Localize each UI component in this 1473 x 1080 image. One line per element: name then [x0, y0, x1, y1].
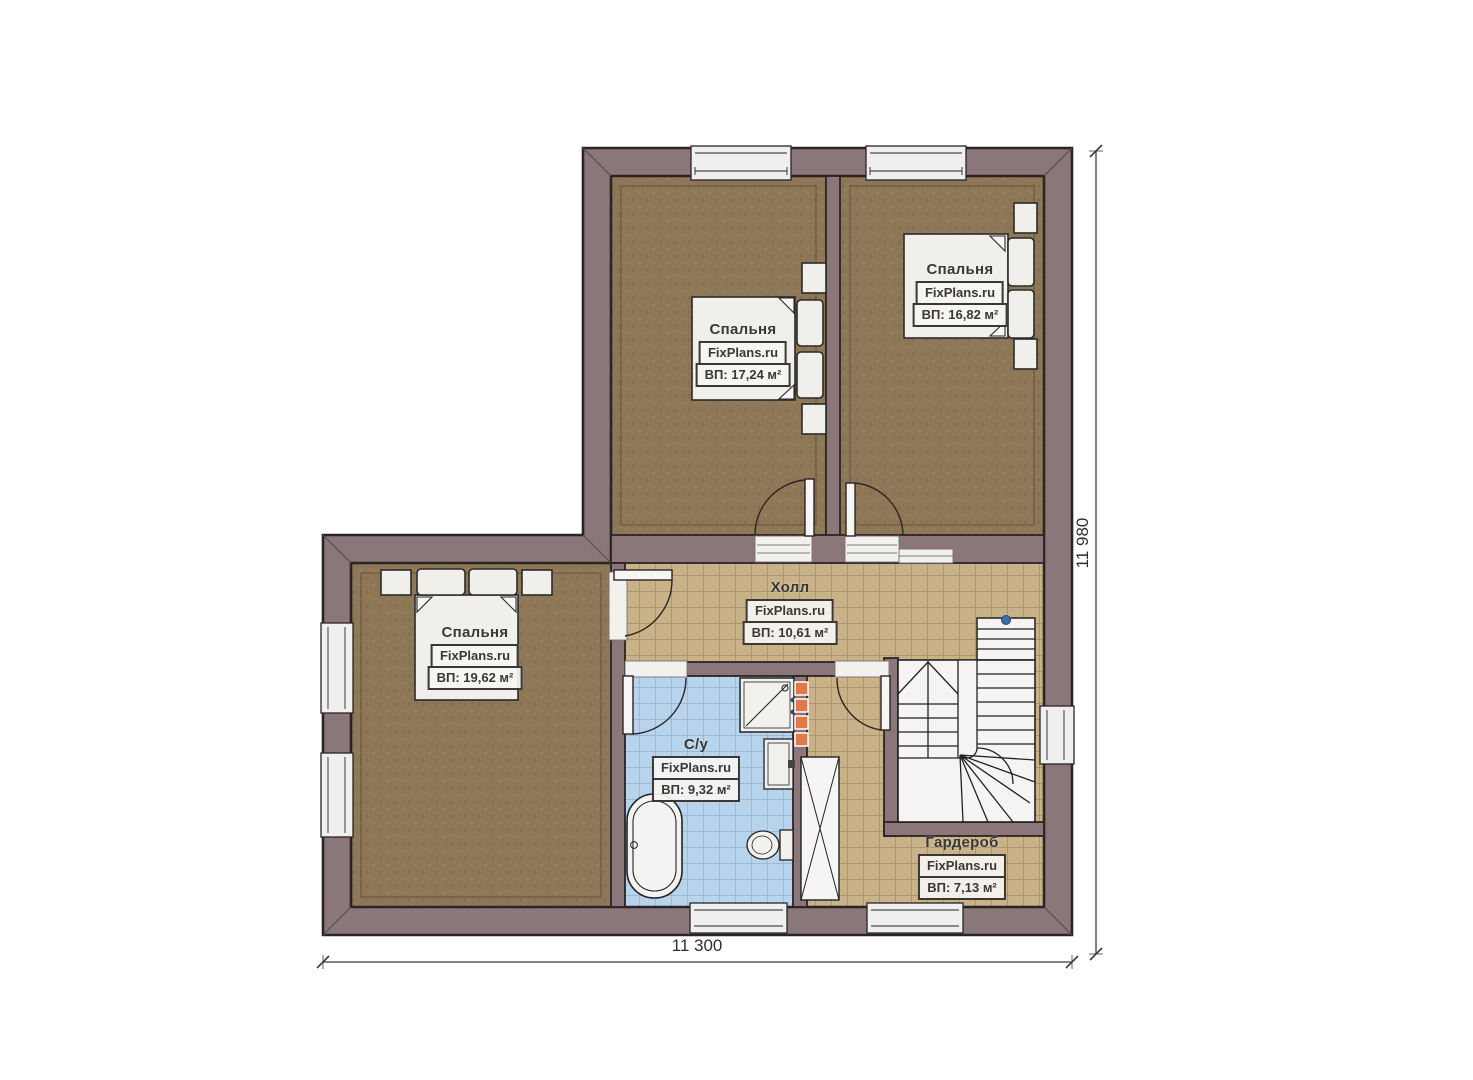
window-top-2	[866, 146, 966, 180]
window-left-2	[321, 753, 353, 837]
window-right-1	[1040, 706, 1074, 764]
label-hall: Холл FixPlans.ru ВП: 10,61 м²	[743, 579, 838, 645]
room-area: ВП: 7,13 м²	[918, 876, 1006, 900]
closet-unit	[801, 757, 839, 900]
threshold-wardrobe	[835, 661, 889, 677]
floor-plan-page: Спальня FixPlans.ru ВП: 17,24 м² Спальня…	[0, 0, 1473, 1080]
room-name: Холл	[771, 579, 810, 596]
threshold-bathroom	[625, 661, 687, 677]
threshold-bedroom3	[609, 572, 627, 640]
room-area: ВП: 17,24 м²	[696, 363, 791, 387]
dimension-height-label: 11 980	[1073, 518, 1093, 569]
room-name: Спальня	[927, 261, 994, 278]
wall-between-top-bedrooms	[826, 176, 840, 537]
window-top-1	[691, 146, 791, 180]
room-name: С/у	[684, 736, 708, 753]
room-name: Спальня	[442, 624, 509, 641]
label-bathroom: С/у FixPlans.ru ВП: 9,32 м²	[652, 736, 740, 802]
label-wardrobe: Гардероб FixPlans.ru ВП: 7,13 м²	[918, 834, 1006, 900]
shower	[740, 678, 795, 732]
room-watermark: FixPlans.ru	[652, 756, 740, 780]
window-left-1	[321, 623, 353, 713]
room-area: ВП: 9,32 м²	[652, 778, 740, 802]
room-name: Спальня	[710, 321, 777, 338]
toilet	[747, 830, 793, 860]
room-area: ВП: 16,82 м²	[913, 303, 1008, 327]
room-watermark: FixPlans.ru	[699, 341, 787, 365]
room-area: ВП: 10,61 м²	[743, 621, 838, 645]
sink	[764, 739, 795, 789]
room-area: ВП: 19,62 м²	[428, 666, 523, 690]
room-watermark: FixPlans.ru	[746, 599, 834, 623]
label-bedroom-top-left: Спальня FixPlans.ru ВП: 17,24 м²	[696, 321, 791, 387]
room-watermark: FixPlans.ru	[918, 854, 1006, 878]
dimension-width-label: 11 300	[672, 936, 723, 956]
label-bedroom-top-right: Спальня FixPlans.ru ВП: 16,82 м²	[913, 261, 1008, 327]
wall-bedrooms-hall	[611, 535, 1044, 563]
window-bottom-1	[690, 903, 787, 933]
floor-plan-drawing	[0, 0, 1473, 1080]
stair-marker-dot	[1002, 616, 1011, 625]
room-name: Гардероб	[925, 834, 998, 851]
threshold-bedroom1	[755, 536, 812, 562]
room-watermark: FixPlans.ru	[916, 281, 1004, 305]
stair-divider	[958, 660, 977, 758]
label-bedroom-lower-left: Спальня FixPlans.ru ВП: 19,62 м²	[428, 624, 523, 690]
dimension-bottom	[317, 955, 1078, 969]
window-bottom-2	[867, 903, 963, 933]
bathtub	[627, 794, 682, 898]
threshold-bedroom2	[845, 536, 899, 562]
room-watermark: FixPlans.ru	[431, 644, 519, 668]
